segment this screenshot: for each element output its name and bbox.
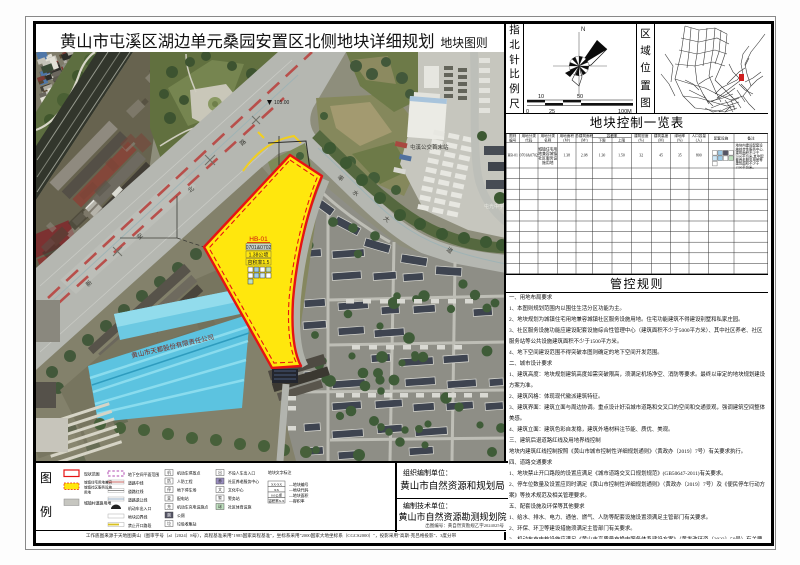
svg-text:地块文字标注: 地块文字标注 [268, 470, 291, 475]
svg-text:地块边界线: 地块边界线 [128, 515, 148, 520]
svg-text:绿地率: 绿地率 [674, 133, 685, 138]
svg-text:防: 防 [167, 479, 171, 484]
svg-text:(M²): (M²) [581, 139, 588, 143]
svg-text:容积率1.5: 容积率1.5 [248, 259, 270, 266]
svg-text:充: 充 [167, 504, 171, 509]
svg-text:XX-XX: XX-XX [271, 482, 282, 486]
svg-text:32: 32 [639, 154, 643, 158]
svg-text:厕: 厕 [167, 514, 171, 518]
svg-text:(人): (人) [696, 138, 703, 143]
svg-text:社区养老服务中心: 社区养老服务中心 [228, 479, 259, 484]
svg-text:机动车出入口: 机动车出入口 [128, 506, 151, 511]
svg-text:用地分类: 用地分类 [522, 133, 537, 138]
svg-text:公厕: 公厕 [177, 513, 185, 518]
svg-text:养: 养 [218, 479, 222, 484]
svg-text:2.08: 2.08 [581, 154, 588, 158]
svg-text:50: 50 [577, 94, 583, 100]
svg-text:垃: 垃 [167, 521, 171, 526]
svg-text:地下空间平面范围: 地下空间平面范围 [128, 472, 159, 477]
svg-text:配电站: 配电站 [177, 496, 189, 501]
svg-text:建筑高度: 建筑高度 [654, 133, 669, 138]
svg-text:编号: 编号 [509, 138, 517, 143]
svg-text:800: 800 [696, 154, 702, 158]
svg-text:城镇社区服务设施: 城镇社区服务设施 [84, 485, 112, 490]
svg-text:用地: 用地 [84, 490, 91, 495]
svg-text:HB-01: HB-01 [249, 236, 268, 243]
svg-text:备注: 备注 [747, 136, 755, 141]
svg-text:用地面积: 用地面积 [560, 133, 575, 138]
svg-text:容积率: 容积率 [607, 133, 618, 138]
svg-text:N: N [581, 27, 585, 33]
svg-text:配套设施: 配套设施 [714, 136, 729, 141]
svg-text:1.50: 1.50 [618, 154, 625, 158]
svg-text:社区服务设: 社区服务设 [538, 156, 557, 161]
svg-text:0.0公顷: 0.0公顷 [271, 492, 283, 497]
svg-text:(M): (M) [658, 139, 664, 143]
svg-text:机动车充电设施点: 机动车充电设施点 [177, 505, 208, 510]
svg-text:道路红线: 道路红线 [128, 489, 144, 494]
svg-text:名称: 名称 [544, 138, 552, 143]
svg-text:警务站: 警务站 [228, 496, 240, 501]
svg-text:1.38: 1.38 [563, 154, 570, 158]
svg-text:现状范围: 现状范围 [84, 472, 100, 477]
svg-text:1.38公顷: 1.38公顷 [249, 252, 269, 259]
svg-text:—地块代码: —地块代码 [288, 488, 309, 493]
svg-text:容积率X.X: 容积率X.X [269, 498, 285, 503]
svg-text:1500平方米。: 1500平方米。 [736, 164, 756, 169]
svg-text:地下停车场: 地下停车场 [177, 488, 197, 493]
svg-text:道路退让线: 道路退让线 [128, 498, 148, 503]
svg-text:—容积率: —容积率 [288, 499, 305, 504]
svg-text:球: 球 [218, 504, 222, 509]
svg-text:总建筑面积: 总建筑面积 [575, 133, 593, 138]
svg-text:35: 35 [678, 154, 682, 158]
svg-text:社区体育设施: 社区体育设施 [228, 505, 251, 510]
svg-text:机: 机 [167, 470, 171, 475]
svg-text:变: 变 [167, 496, 171, 501]
svg-text:10: 10 [538, 94, 544, 100]
svg-text:机动车停放点: 机动车停放点 [177, 471, 200, 476]
svg-text:0701&0702: 0701&0702 [520, 154, 538, 158]
svg-text:禁止开口路段: 禁止开口路段 [128, 523, 151, 528]
svg-text:1.30: 1.30 [599, 154, 606, 158]
svg-text:—地块面积: —地块面积 [288, 493, 309, 498]
svg-text:施用地: 施用地 [542, 160, 554, 165]
svg-text:(%): (%) [639, 139, 645, 143]
svg-text:0701&0702: 0701&0702 [246, 245, 272, 251]
svg-text:停: 停 [167, 487, 171, 492]
svg-text:45: 45 [659, 154, 663, 158]
svg-text:文: 文 [218, 487, 222, 492]
svg-text:上限: 上限 [618, 138, 626, 143]
svg-text:出: 出 [218, 470, 222, 475]
svg-text:图则: 图则 [509, 133, 517, 138]
svg-text:(M²): (M²) [563, 139, 570, 143]
svg-text:垃圾收集站: 垃圾收集站 [177, 522, 197, 527]
svg-text:XX: XX [274, 488, 279, 492]
svg-text:文化中心: 文化中心 [228, 488, 244, 493]
svg-text:HB-01: HB-01 [508, 154, 518, 158]
svg-text:城镇村道路用地: 城镇村道路用地 [84, 501, 111, 506]
svg-text:105.00: 105.00 [274, 100, 290, 106]
svg-text:用地分类: 用地分类 [541, 133, 556, 138]
svg-text:人防工程: 人防工程 [177, 479, 193, 484]
svg-text:不设人车出入口: 不设人车出入口 [228, 471, 255, 476]
svg-text:建筑密度: 建筑密度 [634, 133, 649, 138]
svg-text:城镇住宅用: 城镇住宅用 [538, 147, 557, 152]
svg-text:地兼容城镇: 地兼容城镇 [538, 151, 557, 156]
svg-text:警: 警 [218, 496, 222, 501]
svg-text:(%): (%) [677, 139, 683, 143]
svg-text:屯光中学: 屯光中学 [484, 203, 504, 210]
svg-text:道路中线: 道路中线 [128, 481, 144, 486]
svg-text:—地块编号: —地块编号 [288, 482, 309, 487]
svg-text:下限: 下限 [598, 138, 606, 143]
svg-text:人口容量: 人口容量 [692, 133, 707, 138]
svg-text:屯溪公交首末站: 屯溪公交首末站 [410, 143, 449, 151]
svg-text:代码: 代码 [525, 138, 533, 143]
